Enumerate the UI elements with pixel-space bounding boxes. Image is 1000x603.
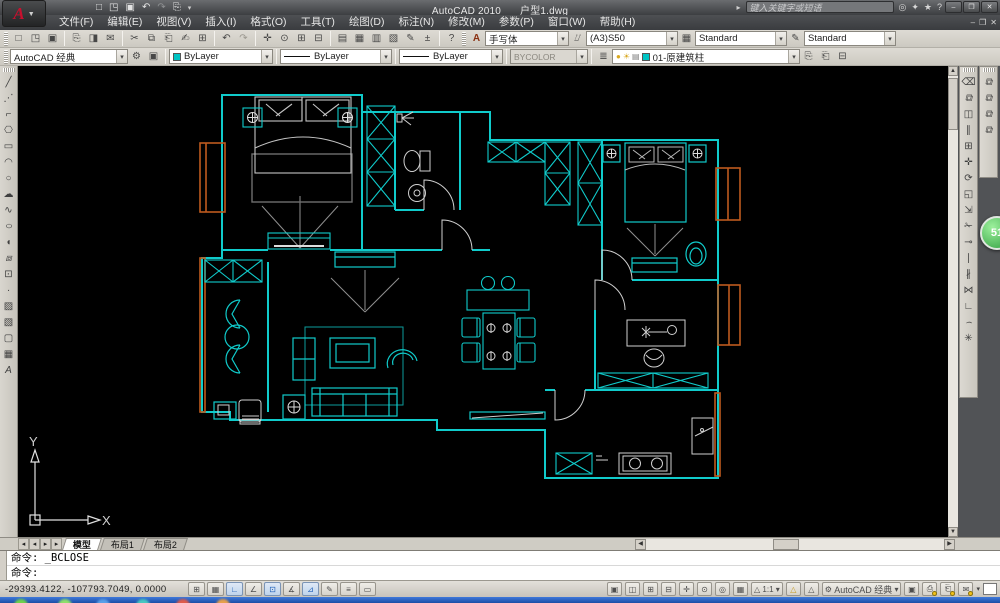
ellipse-icon[interactable]: ○ <box>0 218 19 234</box>
match-properties-icon[interactable]: ✍ <box>177 31 194 47</box>
chevron-down-icon[interactable]: ▾ <box>666 32 677 45</box>
taskbar-icon[interactable] <box>176 599 190 603</box>
linetype-sample <box>284 56 310 57</box>
toolbar-grip[interactable] <box>462 32 466 46</box>
model-space-button[interactable]: ▣ <box>607 582 622 596</box>
toolbar-grip[interactable] <box>4 50 8 64</box>
markup-icon[interactable]: ✎ <box>402 31 419 47</box>
annotation-scale-value: 1:1 <box>762 585 773 594</box>
layer-color-swatch <box>642 53 650 61</box>
infocenter: ▸ 键入关键字或短语 ◎ ✦ ★ ? <box>736 1 942 13</box>
osnap-toggle[interactable]: ⊡ <box>264 582 281 596</box>
help-icon[interactable]: ? <box>443 31 460 47</box>
redo-icon[interactable]: ↷ <box>235 31 252 47</box>
doc-minimize-button[interactable]: ‒ <box>971 15 975 30</box>
dim-style-combo[interactable]: (A3)S50▾ <box>586 31 678 46</box>
text-style-icon[interactable]: A <box>468 31 485 47</box>
table-style-value: Standard <box>699 33 738 44</box>
separator <box>64 31 65 46</box>
break-icon[interactable]: ∦ <box>961 266 977 282</box>
color-value: ByLayer <box>184 51 219 62</box>
warning-badge <box>932 591 937 596</box>
properties-icon[interactable]: ▤ <box>334 31 351 47</box>
windows-taskbar[interactable] <box>0 597 1000 603</box>
taskbar-icon[interactable] <box>58 599 72 603</box>
vertical-scrollbar[interactable]: ▲ ▼ <box>948 66 958 537</box>
grid-toggle[interactable]: ▦ <box>207 582 224 596</box>
quick-view-drawings-icon[interactable]: ⊞ <box>643 582 658 596</box>
menu-window[interactable]: 窗口(W) <box>541 15 593 30</box>
send-under-objects-icon[interactable]: ⧉ <box>981 122 997 138</box>
layer-freeze-icon[interactable]: ☀ <box>623 52 630 61</box>
rotate-icon[interactable]: ⟳ <box>961 170 977 186</box>
command-window-grip[interactable] <box>0 551 7 580</box>
block-editor-icon[interactable]: ⊞ <box>194 31 211 47</box>
polygon-icon[interactable]: ⎔ <box>1 122 17 138</box>
polyline-icon[interactable]: ⌐ <box>1 106 17 122</box>
layer-on-icon[interactable]: ● <box>616 52 621 61</box>
warning-badge <box>968 591 973 596</box>
annotation-scale-button[interactable]: △ 1:1 ▾ <box>751 582 783 596</box>
toolbar-grip[interactable] <box>3 68 15 72</box>
join-icon[interactable]: ⋈ <box>961 282 977 298</box>
draworder-toolbar: ⧉ ⧉ ⧉ ⧉ <box>979 66 998 178</box>
dim-style-icon: ⌰ <box>569 31 586 47</box>
favorites-icon[interactable]: ★ <box>924 2 932 13</box>
direction-arrows <box>262 196 683 312</box>
circle-icon[interactable]: ○ <box>1 170 17 186</box>
arc-icon[interactable]: ◠ <box>1 154 17 170</box>
menu-modify[interactable]: 修改(M) <box>441 15 492 30</box>
menu-draw[interactable]: 绘图(D) <box>342 15 392 30</box>
layout-space-button[interactable]: ◫ <box>625 582 640 596</box>
copy-icon[interactable]: ⧉ <box>143 31 160 47</box>
separator <box>122 31 123 46</box>
table-style-icon: ▦ <box>678 31 695 47</box>
lineweight-combo[interactable]: ByLayer▾ <box>399 49 503 64</box>
save-workspace-icon[interactable]: ▣ <box>145 49 162 65</box>
pan-icon[interactable]: ✛ <box>679 582 694 596</box>
separator <box>439 31 440 46</box>
ucs-x-label: X <box>102 513 111 528</box>
doc-restore-button[interactable]: ❐ <box>979 15 986 30</box>
workspace-settings-icon[interactable]: ⚙ <box>128 49 145 65</box>
bathroom <box>397 112 430 202</box>
clean-screen-button[interactable] <box>983 583 997 595</box>
publish-icon[interactable]: ✉ <box>102 31 119 47</box>
menu-edit[interactable]: 编辑(E) <box>100 15 149 30</box>
workspace-combo[interactable]: AutoCAD 经典▾ <box>10 49 128 64</box>
chevron-down-icon[interactable]: ▾ <box>884 32 895 45</box>
chevron-down-icon[interactable]: ▾ <box>491 50 502 63</box>
minimize-button[interactable]: ‒ <box>945 1 962 13</box>
linetype-combo[interactable]: ByLayer▾ <box>280 49 392 64</box>
modify-toolbar: ⌫ ⧉ ◫ ∥ ⊞ ✛ ⟳ ◱ ⇲ ✁ ⊸ ∣ ∦ ⋈ ∟ ⌢ ✳ <box>959 66 978 398</box>
xref-notification-icon[interactable]: ⎗ <box>940 582 955 596</box>
tab-layout1[interactable]: 布局1 <box>100 538 145 550</box>
break-at-point-icon[interactable]: ∣ <box>961 250 977 266</box>
zoom-realtime-icon[interactable]: ⊙ <box>276 31 293 47</box>
plot-preview-icon[interactable]: ◨ <box>85 31 102 47</box>
help-icon[interactable]: ? <box>937 2 942 12</box>
chevron-down-icon[interactable]: ▾ <box>261 50 272 63</box>
undo-icon[interactable]: ↶ <box>218 31 235 47</box>
showmotion-icon[interactable]: ▦ <box>733 582 748 596</box>
separator <box>330 31 331 46</box>
zoom-icon[interactable]: ⊙ <box>697 582 712 596</box>
status-right-cluster: ▣ ◫ ⊞ ⊟ ✛ ⊙ ◎ ▦ △ 1:1 ▾ △ △ ⚙ AutoCAD 经典… <box>607 582 1000 596</box>
ucs-icon: X Y <box>29 434 111 528</box>
rectangle-icon[interactable]: ▭ <box>1 138 17 154</box>
autocad-window: A▼ □ ◳ ▣ ↶ ↷ ⎘ ▾ AutoCAD 2010 户型1.dwg ▸ … <box>0 0 1000 603</box>
send-to-back-icon[interactable]: ⧉ <box>981 90 997 106</box>
line-icon[interactable]: ╱ <box>1 74 17 90</box>
chevron-down-icon[interactable]: ▾ <box>775 32 786 45</box>
make-layer-current-icon[interactable]: ⎘ <box>800 49 817 65</box>
separator <box>255 31 256 46</box>
color-swatch <box>173 53 181 61</box>
close-button[interactable]: ✕ <box>981 1 998 13</box>
ortho-toggle[interactable]: ∟ <box>226 582 243 596</box>
status-bar: -29393.4122, -107793.7049, 0.0000 ⊞ ▦ ∟ … <box>0 580 1000 597</box>
steering-wheel-icon[interactable]: ◎ <box>715 582 730 596</box>
doors <box>424 180 632 420</box>
annotation-autoscale-icon[interactable]: △ <box>804 582 819 596</box>
search-input[interactable]: 键入关键字或短语 <box>746 1 894 13</box>
menu-format[interactable]: 格式(O) <box>243 15 293 30</box>
chevron-down-icon: ▾ <box>894 585 898 594</box>
tool-palettes-icon[interactable]: ▥ <box>368 31 385 47</box>
start-orb-icon[interactable] <box>14 599 28 603</box>
menu-bar: 文件(F) 编辑(E) 视图(V) 插入(I) 格式(O) 工具(T) 绘图(D… <box>0 15 1000 30</box>
scroll-left-icon[interactable]: ◀ <box>635 539 646 550</box>
subscription-icon[interactable]: ✦ <box>911 2 919 13</box>
toolbar-grip[interactable] <box>963 68 975 72</box>
workspace-value: AutoCAD 经典 <box>14 50 75 64</box>
insert-block-icon[interactable]: ⧈ <box>1 250 17 266</box>
quickcalc-icon[interactable]: ± <box>419 31 436 47</box>
layer-lock-icon[interactable]: ▤ <box>632 52 640 61</box>
tab-model[interactable]: 模型 <box>62 538 102 550</box>
draw-toolbar: ╱ ⋰ ⌐ ⎔ ▭ ◠ ○ ☁ ∿ ○ ◖ ⧈ ⊡ · ▨ ▧ ▢ ▦ A <box>0 66 18 537</box>
doc-close-button[interactable]: ✕ <box>990 15 997 30</box>
zoom-window-icon[interactable]: ⊞ <box>293 31 310 47</box>
menu-tools[interactable]: 工具(T) <box>294 15 342 30</box>
construction-line-icon[interactable]: ⋰ <box>1 90 17 106</box>
separator <box>591 49 592 64</box>
infocenter-toggle-icon[interactable]: ▸ <box>736 3 740 12</box>
array-icon[interactable]: ⊞ <box>961 138 977 154</box>
separator <box>165 49 166 64</box>
last-tab-icon[interactable]: ▸ <box>51 538 62 550</box>
text-style-combo[interactable]: 手写体▾ <box>485 31 569 46</box>
cabinets <box>205 106 708 474</box>
stretch-icon[interactable]: ⇲ <box>961 202 977 218</box>
message-notification-icon[interactable]: ✉ <box>958 582 973 596</box>
annotation-visibility-icon[interactable]: △ <box>786 582 801 596</box>
warning-badge <box>950 591 955 596</box>
polar-toggle[interactable]: ∠ <box>245 582 262 596</box>
chevron-down-icon[interactable]: ▾ <box>788 50 799 63</box>
status-toggles: ⊞ ▦ ∟ ∠ ⊡ ∡ ⊿ ✎ ≡ ▭ <box>188 582 376 596</box>
scroll-down-icon[interactable]: ▼ <box>948 527 958 537</box>
ducs-toggle[interactable]: ⊿ <box>302 582 319 596</box>
chevron-down-icon: ▾ <box>776 585 780 594</box>
layer-properties-icon[interactable]: ≣ <box>595 49 612 65</box>
trim-icon[interactable]: ✁ <box>961 218 977 234</box>
kitchen <box>596 418 713 474</box>
workspace-switch-button[interactable]: ⚙ AutoCAD 经典 ▾ <box>822 582 902 596</box>
table-icon[interactable]: ▦ <box>1 346 17 362</box>
spline-icon[interactable]: ∿ <box>1 202 17 218</box>
ucs-y-label: Y <box>29 434 38 449</box>
save-icon[interactable]: ▣ <box>44 31 61 47</box>
plot-style-combo: BYCOLOR▾ <box>510 49 588 64</box>
layer-states-icon[interactable]: ⊟ <box>834 49 851 65</box>
scroll-right-icon[interactable]: ▶ <box>944 539 955 550</box>
plot-notification-icon[interactable]: ⎙ <box>922 582 937 596</box>
search-icon[interactable]: ◎ <box>899 2 907 13</box>
designcenter-icon[interactable]: ▦ <box>351 31 368 47</box>
status-menu-icon[interactable]: ▾ <box>976 585 980 593</box>
autocad-logo-icon: A <box>13 4 24 24</box>
menu-help[interactable]: 帮助(H) <box>593 15 643 30</box>
menu-file[interactable]: 文件(F) <box>52 15 100 30</box>
prev-tab-icon[interactable]: ◂ <box>29 538 40 550</box>
sheet-set-manager-icon[interactable]: ▧ <box>385 31 402 47</box>
menu-dimension[interactable]: 标注(N) <box>392 15 442 30</box>
tab-navigation: ◂ ◂ ▸ ▸ <box>18 538 62 550</box>
plot-style-value: BYCOLOR <box>514 52 556 62</box>
separator <box>276 49 277 64</box>
chevron-down-icon: ▾ <box>576 50 587 63</box>
standard-toolbar: □ ◳ ▣ ⎘ ◨ ✉ ✂ ⧉ ⎗ ✍ ⊞ ↶ ↷ ✛ ⊙ ⊞ ⊟ ▤ ▦ ▥ … <box>0 30 1000 48</box>
separator <box>506 49 507 64</box>
copy-icon[interactable]: ⧉ <box>961 90 977 106</box>
chevron-down-icon[interactable]: ▾ <box>380 50 391 63</box>
ellipse-arc-icon[interactable]: ◖ <box>1 234 17 250</box>
lineweight-sample <box>403 56 429 57</box>
layer-name: 01-原建筑柱 <box>653 50 705 64</box>
mirror-icon[interactable]: ◫ <box>961 106 977 122</box>
first-tab-icon[interactable]: ◂ <box>18 538 29 550</box>
move-icon[interactable]: ✛ <box>961 154 977 170</box>
drawing-canvas[interactable]: X Y <box>18 66 948 537</box>
paste-icon[interactable]: ⎗ <box>160 31 177 47</box>
next-tab-icon[interactable]: ▸ <box>40 538 51 550</box>
hatch-icon[interactable]: ▨ <box>1 298 17 314</box>
fillet-icon[interactable]: ⌢ <box>961 314 977 330</box>
right-toolbar-dock: ⌫ ⧉ ◫ ∥ ⊞ ✛ ⟳ ◱ ⇲ ✁ ⊸ ∣ ∦ ⋈ ∟ ⌢ ✳ ⧉ <box>958 66 1000 537</box>
explode-icon[interactable]: ✳ <box>961 330 977 346</box>
command-input[interactable]: 命令: <box>7 566 1000 581</box>
layout-tab-row: ◂ ◂ ▸ ▸ 模型 布局1 布局2 ◀ ▶ <box>0 537 1000 550</box>
linetype-value: ByLayer <box>314 51 349 62</box>
lineweight-value: ByLayer <box>433 51 468 62</box>
make-block-icon[interactable]: ⊡ <box>1 266 17 282</box>
properties-toolbar: AutoCAD 经典▾ ⚙ ▣ ByLayer▾ ByLayer▾ ByLaye… <box>0 48 1000 66</box>
command-window[interactable]: 命令: _BCLOSE 命令: <box>0 550 1000 580</box>
tab-layout2[interactable]: 布局2 <box>143 538 188 550</box>
chevron-down-icon[interactable]: ▾ <box>116 50 127 63</box>
walls <box>202 95 718 478</box>
revision-cloud-icon[interactable]: ☁ <box>1 186 17 202</box>
lwt-toggle[interactable]: ≡ <box>340 582 357 596</box>
command-text[interactable]: 命令: _BCLOSE 命令: <box>7 551 1000 580</box>
toolbar-grip[interactable] <box>983 68 995 72</box>
new-icon[interactable]: □ <box>10 31 27 47</box>
zoom-previous-icon[interactable]: ⊟ <box>310 31 327 47</box>
taskbar-icon[interactable] <box>96 599 110 603</box>
dim-style-value: (A3)S50 <box>590 33 625 44</box>
chevron-down-icon[interactable]: ▾ <box>557 32 568 45</box>
horizontal-scrollbar[interactable]: ◀ ▶ <box>635 539 955 550</box>
layer-combo[interactable]: ● ☀ ▤ 01-原建筑柱▾ <box>612 49 800 64</box>
dyn-toggle[interactable]: ✎ <box>321 582 338 596</box>
text-style-value: 手写体 <box>489 32 518 46</box>
erase-icon[interactable]: ⌫ <box>961 74 977 90</box>
pan-icon[interactable]: ✛ <box>259 31 276 47</box>
bring-above-objects-icon[interactable]: ⧉ <box>981 106 997 122</box>
chamfer-icon[interactable]: ∟ <box>961 298 977 314</box>
scrollbar-thumb[interactable] <box>773 539 799 550</box>
taskbar-icon[interactable] <box>216 599 230 603</box>
menu-insert[interactable]: 插入(I) <box>198 15 243 30</box>
coordinates-readout: -29393.4122, -107793.7049, 0.0000 <box>5 584 180 595</box>
toolbar-grip[interactable] <box>4 32 8 46</box>
dining-area <box>462 277 535 370</box>
table-style-combo[interactable]: Standard▾ <box>695 31 787 46</box>
restore-button[interactable]: ❐ <box>963 1 980 13</box>
separator <box>214 31 215 46</box>
open-icon[interactable]: ◳ <box>27 31 44 47</box>
main-area: ╱ ⋰ ⌐ ⎔ ▭ ◠ ○ ☁ ∿ ○ ◖ ⧈ ⊡ · ▨ ▧ ▢ ▦ A <box>0 66 1000 537</box>
gradient-icon[interactable]: ▧ <box>1 314 17 330</box>
mtext-icon[interactable]: A <box>1 362 17 378</box>
floor-plan: X Y <box>18 66 948 537</box>
scrollbar-thumb[interactable] <box>948 78 958 130</box>
point-icon[interactable]: · <box>1 282 17 298</box>
mleader-style-combo[interactable]: Standard▾ <box>804 31 896 46</box>
app-menu-button[interactable]: A▼ <box>2 0 46 27</box>
scale-icon[interactable]: ◱ <box>961 186 977 202</box>
snap-toggle[interactable]: ⊞ <box>188 582 205 596</box>
command-history-line: 命令: _BCLOSE <box>7 551 1000 566</box>
living-room <box>283 252 417 419</box>
plot-icon[interactable]: ⎘ <box>68 31 85 47</box>
chevron-down-icon: ▼ <box>28 10 35 18</box>
gear-icon: ⚙ <box>825 585 832 594</box>
offset-icon[interactable]: ∥ <box>961 122 977 138</box>
menu-view[interactable]: 视图(V) <box>149 15 198 30</box>
qp-toggle[interactable]: ▭ <box>359 582 376 596</box>
document-window-controls: ‒ ❐ ✕ <box>971 15 997 30</box>
extend-icon[interactable]: ⊸ <box>961 234 977 250</box>
workspace-label: AutoCAD 经典 <box>834 583 892 596</box>
cut-icon[interactable]: ✂ <box>126 31 143 47</box>
bring-to-front-icon[interactable]: ⧉ <box>981 74 997 90</box>
taskbar-icon[interactable] <box>136 599 150 603</box>
entry-door <box>470 412 545 419</box>
annotation-icon: △ <box>754 585 760 594</box>
study <box>627 320 685 367</box>
mleader-style-value: Standard <box>808 33 847 44</box>
title-bar: A▼ □ ◳ ▣ ↶ ↷ ⎘ ▾ AutoCAD 2010 户型1.dwg ▸ … <box>0 0 1000 15</box>
layer-previous-icon[interactable]: ⎗ <box>817 49 834 65</box>
lock-toolbars-icon[interactable]: ▣ <box>904 582 919 596</box>
balcony <box>214 300 261 424</box>
region-icon[interactable]: ▢ <box>1 330 17 346</box>
color-combo[interactable]: ByLayer▾ <box>169 49 273 64</box>
menu-parametric[interactable]: 参数(P) <box>492 15 541 30</box>
mleader-style-icon: ✎ <box>787 31 804 47</box>
otrack-toggle[interactable]: ∡ <box>283 582 300 596</box>
window-controls: ‒ ❐ ✕ <box>945 1 998 13</box>
separator <box>395 49 396 64</box>
quick-view-layouts-icon[interactable]: ⊟ <box>661 582 676 596</box>
scroll-up-icon[interactable]: ▲ <box>948 66 958 76</box>
